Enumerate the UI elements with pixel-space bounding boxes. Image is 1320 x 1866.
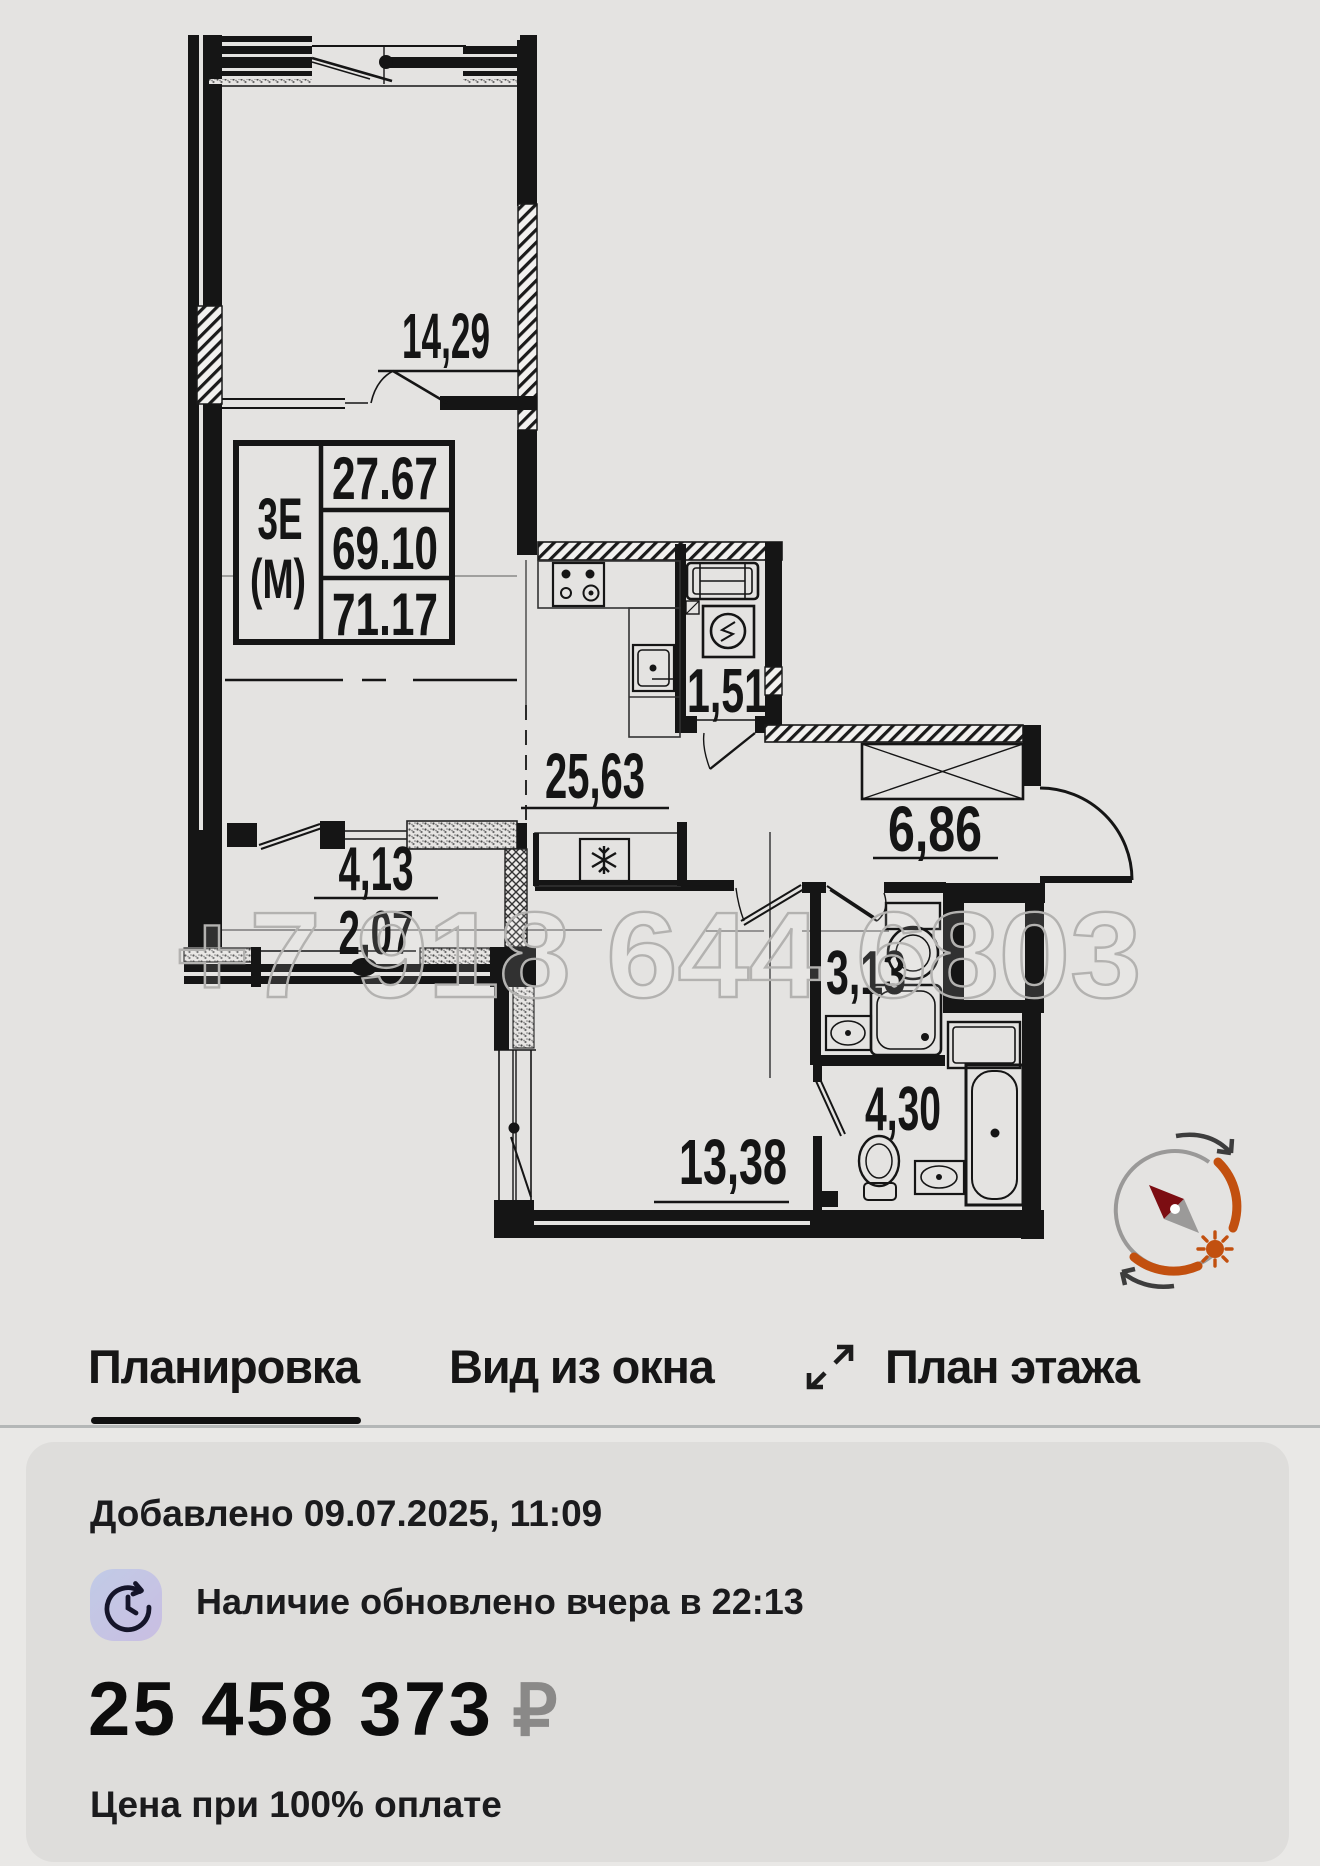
svg-text:(М): (М) — [250, 547, 306, 610]
svg-text:27.67: 27.67 — [332, 445, 438, 512]
svg-text:71.17: 71.17 — [332, 581, 438, 648]
svg-text:14,29: 14,29 — [402, 300, 490, 372]
svg-text:4,30: 4,30 — [865, 1075, 941, 1144]
svg-text:6,86: 6,86 — [888, 793, 982, 865]
svg-text:69.10: 69.10 — [332, 515, 438, 582]
svg-text:13,38: 13,38 — [679, 1126, 787, 1198]
svg-text:1,51: 1,51 — [687, 657, 767, 726]
svg-text:3Е: 3Е — [258, 487, 303, 552]
svg-text:25,63: 25,63 — [545, 740, 645, 812]
svg-text:+7 918 644 6803: +7 918 644 6803 — [175, 887, 1142, 1023]
